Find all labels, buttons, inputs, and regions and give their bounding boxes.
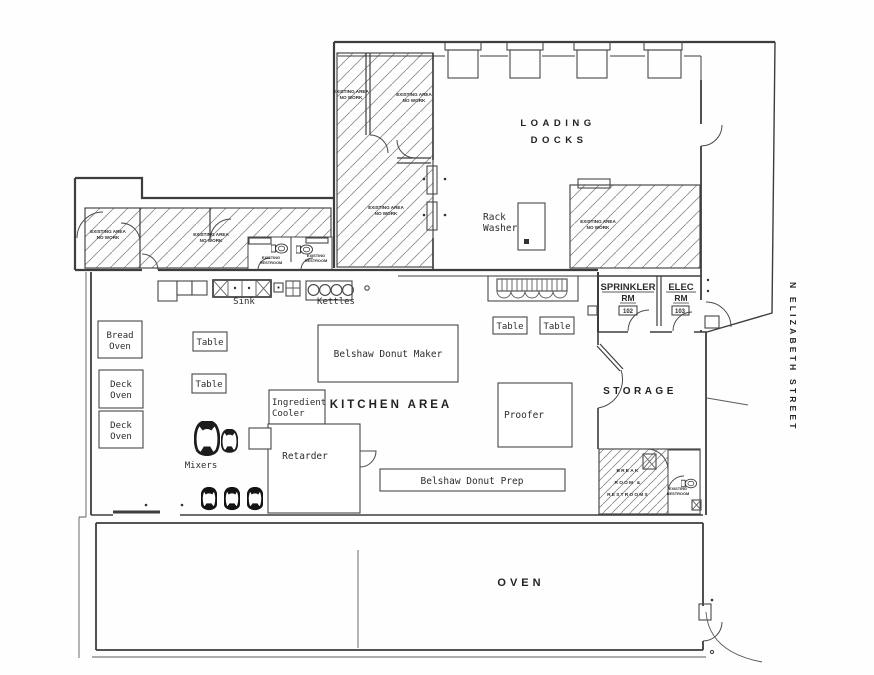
oven-label: OVEN	[497, 577, 544, 589]
existing-area-note: EXISTING AREA	[580, 219, 616, 224]
elec-label: ELEC	[668, 282, 693, 293]
existing-area-note: EXISTING AREA	[90, 229, 126, 234]
dock-doors	[445, 42, 682, 78]
sprinkler-rm-label: RM	[621, 293, 634, 303]
deck-oven-1-label-2: Oven	[110, 391, 132, 401]
table-2-label: Table	[195, 380, 222, 390]
existing-area-note: EXISTING AREA	[333, 89, 369, 94]
storage-label: STORAGE	[603, 386, 677, 397]
ingredient-cooler-label-1: Ingredient	[272, 398, 326, 408]
mixers-label: Mixers	[185, 461, 218, 471]
proofer-label: Proofer	[504, 410, 544, 421]
ingredient-cooler-label-2: Cooler	[272, 409, 305, 419]
mixer-icon	[222, 429, 238, 451]
existing-area-note: NO WORK	[340, 95, 363, 100]
bread-oven-label-1: Bread	[106, 331, 133, 341]
deck-oven-1-label-1: Deck	[110, 380, 132, 390]
existing-area-note: NO WORK	[403, 98, 426, 103]
existing-area-note: EXISTING AREA	[193, 232, 229, 237]
retarder-label: Retarder	[282, 451, 328, 462]
table-3-label: Table	[496, 322, 523, 332]
mixer-icon	[195, 421, 219, 455]
table-1-label: Table	[196, 338, 223, 348]
floor-plan: LOADING DOCKS KITCHEN AREA STORAGE OVEN …	[0, 0, 874, 675]
break-room-label-2: ROOM &	[615, 480, 642, 486]
break-room-label-1: BREAK	[616, 468, 639, 474]
deck-oven-2-label-1: Deck	[110, 421, 132, 431]
kettles-label: Kettles	[317, 297, 355, 307]
kettle-icon	[201, 488, 216, 509]
break-room-label-3: RESTROOMS	[607, 492, 649, 498]
existing-area-upper-left	[337, 53, 433, 267]
elec-rm-label: RM	[674, 293, 687, 303]
toilet-icon	[271, 244, 288, 253]
rack-washer-label-1: Rack	[483, 212, 506, 223]
existing-area-note: NO WORK	[200, 238, 223, 243]
retarder-box	[268, 424, 360, 513]
elec-room-number: 103	[675, 309, 686, 315]
existing-area-note: EXISTING AREA	[368, 205, 404, 210]
existing-area-note: NO WORK	[97, 235, 120, 240]
kitchen-area-label: KITCHEN AREA	[330, 399, 452, 411]
rack-washer-label-2: Washer	[483, 223, 518, 234]
street-label: N ELIZABETH STREET	[788, 282, 798, 432]
existing-area-note: NO WORK	[587, 225, 610, 230]
existing-restroom-note: RESTROOM	[260, 260, 282, 265]
sink-label: Sink	[233, 297, 255, 307]
existing-area-note: EXISTING AREA	[396, 92, 432, 97]
belshaw-donut-maker-label: Belshaw Donut Maker	[334, 349, 443, 360]
sprinkler-room-number: 102	[623, 309, 634, 315]
floor-plan-drawing: LOADING DOCKS KITCHEN AREA STORAGE OVEN …	[0, 0, 874, 675]
kettle-icon	[247, 488, 262, 509]
loading-docks-label-2: DOCKS	[531, 135, 588, 146]
belshaw-donut-prep-label: Belshaw Donut Prep	[421, 476, 524, 487]
table-4-label: Table	[543, 322, 570, 332]
existing-restroom-note: RESTROOM	[667, 491, 689, 496]
kettle-icon	[224, 488, 239, 509]
loading-docks-label-1: LOADING	[520, 118, 595, 129]
deck-oven-2-label-2: Oven	[110, 432, 132, 442]
bread-oven-label-2: Oven	[109, 342, 131, 352]
existing-area-note: NO WORK	[375, 211, 398, 216]
sprinkler-label: SPRINKLER	[601, 282, 656, 293]
existing-restroom-note: RESTROOM	[305, 258, 327, 263]
rack-washer-box	[518, 203, 545, 250]
